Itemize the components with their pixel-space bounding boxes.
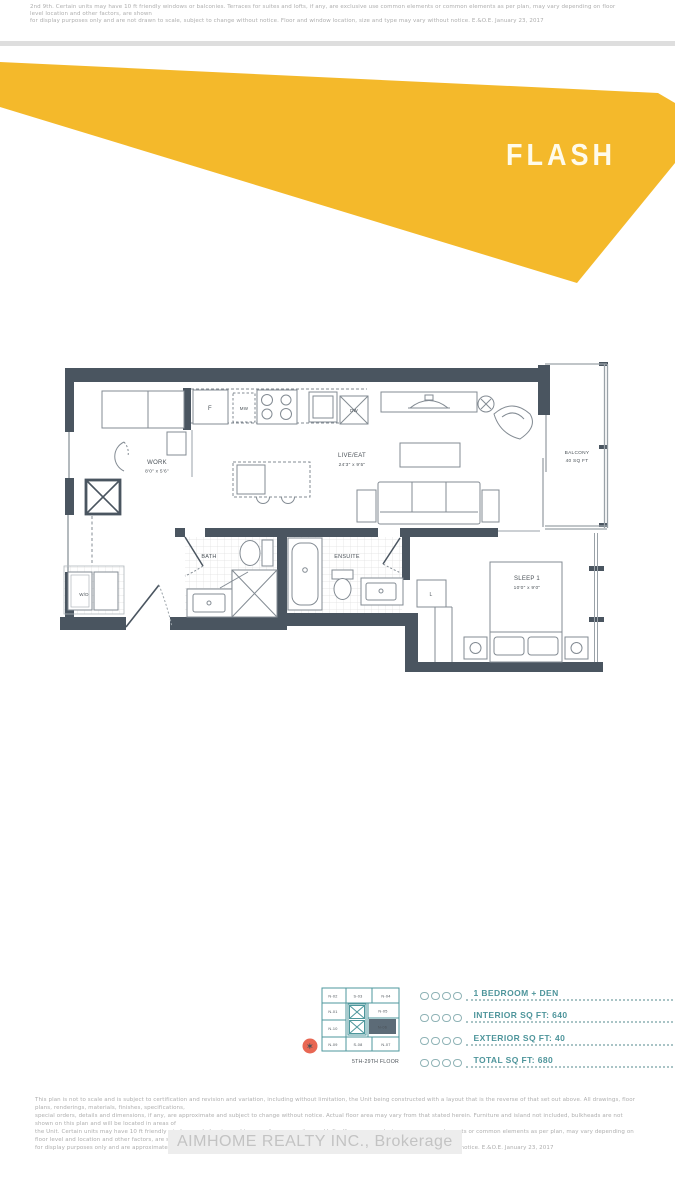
- unit-n09: N-09: [328, 1043, 337, 1047]
- toilet-tank: [262, 540, 273, 566]
- circle-icon: [442, 1014, 451, 1023]
- stool: [257, 497, 270, 504]
- circle-icon: [431, 1059, 440, 1068]
- hall-laundry: W/D: [64, 480, 172, 627]
- kitchen-island: [233, 462, 310, 497]
- exterior-sqft-row: EXTERIOR SQ FT: 40: [420, 1029, 673, 1046]
- circle-icon: [453, 1059, 462, 1068]
- unit-n01: N-01: [328, 1010, 337, 1014]
- ensuite-toilet: [334, 579, 351, 600]
- floor-plan: F MW DW WORK 8'0" x 5'6" W/D: [60, 355, 615, 685]
- floor-range-label: 5TH-29TH FLOOR: [352, 1059, 399, 1065]
- ensuite-label: ENSUITE: [334, 554, 360, 560]
- work-room-label: WORK: [147, 460, 167, 466]
- bedroom: [417, 533, 598, 662]
- dryer: [94, 572, 118, 610]
- live-eat-dims: 24'3" x 9'5": [339, 462, 366, 468]
- sofa-end-table: [482, 490, 499, 522]
- total-sqft-row: TOTAL SQ FT: 680: [420, 1051, 673, 1068]
- svg-text:✶: ✶: [307, 1042, 314, 1051]
- exterior-sqft-label: EXTERIOR SQ FT: 40: [466, 1033, 566, 1043]
- toilet: [240, 541, 260, 566]
- top-disclaimer-line1: 2nd 9th. Certain units may have 10 ft fr…: [30, 4, 630, 18]
- balcony-labels: BALCONY 40 SQ FT: [565, 450, 590, 464]
- circle-icon: [420, 1059, 429, 1068]
- desk-chair: [115, 442, 124, 471]
- stool: [282, 497, 295, 504]
- floorplan-sheet: 2nd 9th. Certain units may have 10 ft fr…: [0, 0, 675, 1200]
- balcony-area: 40 SQ FT: [566, 458, 589, 464]
- circle-icon: [431, 1037, 440, 1046]
- balcony: [543, 364, 608, 529]
- live-eat-label: LIVE/EAT: [338, 453, 366, 459]
- circle-icon: [453, 1037, 462, 1046]
- divider-band: [0, 41, 675, 46]
- dotted-leader: INTERIOR SQ FT: 640: [466, 1010, 674, 1023]
- unit-type-label: 1 BEDROOM + DEN: [466, 988, 559, 998]
- bottom-disclaimer-line1: This plan is not to scale and is subject…: [35, 1096, 640, 1112]
- nightstand: [464, 637, 487, 659]
- unit-n10: N-10: [328, 1027, 337, 1031]
- cooktop: [257, 390, 297, 424]
- living: [357, 392, 540, 531]
- balcony-label: BALCONY: [565, 450, 590, 456]
- bottom-disclaimer-line2: special orders, details and dimensions, …: [35, 1112, 640, 1128]
- lounge-chair: [494, 406, 532, 439]
- circle-icon: [453, 992, 462, 1001]
- circle-icon: [453, 1014, 462, 1023]
- dotted-leader: EXTERIOR SQ FT: 40: [466, 1033, 674, 1046]
- unit-n06-highlighted: N-06: [378, 1026, 387, 1030]
- sofa-end-table: [357, 490, 376, 522]
- interior-sqft-row: INTERIOR SQ FT: 640: [420, 1006, 673, 1023]
- desk: [102, 391, 184, 428]
- circle-icon: [442, 1037, 451, 1046]
- circle-icon: [431, 1014, 440, 1023]
- interior-sqft-label: INTERIOR SQ FT: 640: [466, 1010, 568, 1020]
- ensuite-vanity: [361, 578, 403, 605]
- circles-ornament: [420, 1059, 462, 1069]
- sleep-label: SLEEP 1: [514, 576, 540, 582]
- sleep-dims: 10'0" x 9'0": [514, 585, 541, 591]
- flash-logo: FLASH: [506, 138, 616, 173]
- unit-n07: N-07: [381, 1043, 390, 1047]
- dotted-leader: 1 BEDROOM + DEN: [466, 988, 674, 1001]
- circle-icon: [442, 992, 451, 1001]
- circles-ornament: [420, 992, 462, 1002]
- unit-type-row: 1 BEDROOM + DEN: [420, 984, 673, 1001]
- circles-ornament: [420, 1037, 462, 1047]
- coffee-table: [400, 443, 460, 467]
- dishwasher-label: DW: [350, 408, 358, 413]
- compass-icon: ✶: [303, 1039, 318, 1054]
- work-labels: WORK 8'0" x 5'6": [145, 460, 169, 475]
- dotted-leader: TOTAL SQ FT: 680: [466, 1055, 674, 1068]
- circles-ornament: [420, 1014, 462, 1024]
- ensuite-toilet-tank: [332, 570, 353, 579]
- entry-door: [126, 585, 159, 627]
- side-table: [167, 432, 186, 455]
- bathtub: [288, 538, 322, 610]
- unit-n02: N-02: [328, 995, 337, 999]
- nightstand: [565, 637, 588, 659]
- unit-s08: S-08: [353, 1043, 362, 1047]
- microwave-label: MW: [240, 406, 249, 411]
- closet-label: L: [429, 592, 432, 598]
- kitchen: [191, 389, 368, 504]
- unit-n04: N-04: [381, 995, 390, 999]
- circle-icon: [420, 992, 429, 1001]
- unit-s03: S-03: [353, 995, 362, 999]
- circle-icon: [420, 1014, 429, 1023]
- laundry-label: W/D: [79, 592, 89, 597]
- top-disclaimer: 2nd 9th. Certain units may have 10 ft fr…: [30, 4, 630, 24]
- unit-n05: N-05: [378, 1010, 387, 1014]
- circle-icon: [442, 1059, 451, 1068]
- circle-icon: [420, 1037, 429, 1046]
- circle-icon: [431, 992, 440, 1001]
- sofa: [378, 482, 480, 524]
- key-plan: ✶ N-02 S-03 N-04 N-01 N-05: [295, 983, 407, 1068]
- fridge-label: F: [208, 406, 212, 412]
- bath-label: BATH: [201, 554, 216, 560]
- total-sqft-label: TOTAL SQ FT: 680: [466, 1055, 554, 1065]
- top-disclaimer-line2: for display purposes only and are not dr…: [30, 18, 630, 25]
- brokerage-watermark: AIMHOME REALTY INC., Brokerage: [168, 1130, 462, 1154]
- living-labels: LIVE/EAT 24'3" x 9'5": [338, 453, 366, 468]
- work-room-dims: 8'0" x 5'6": [145, 469, 169, 475]
- washer: [68, 572, 92, 610]
